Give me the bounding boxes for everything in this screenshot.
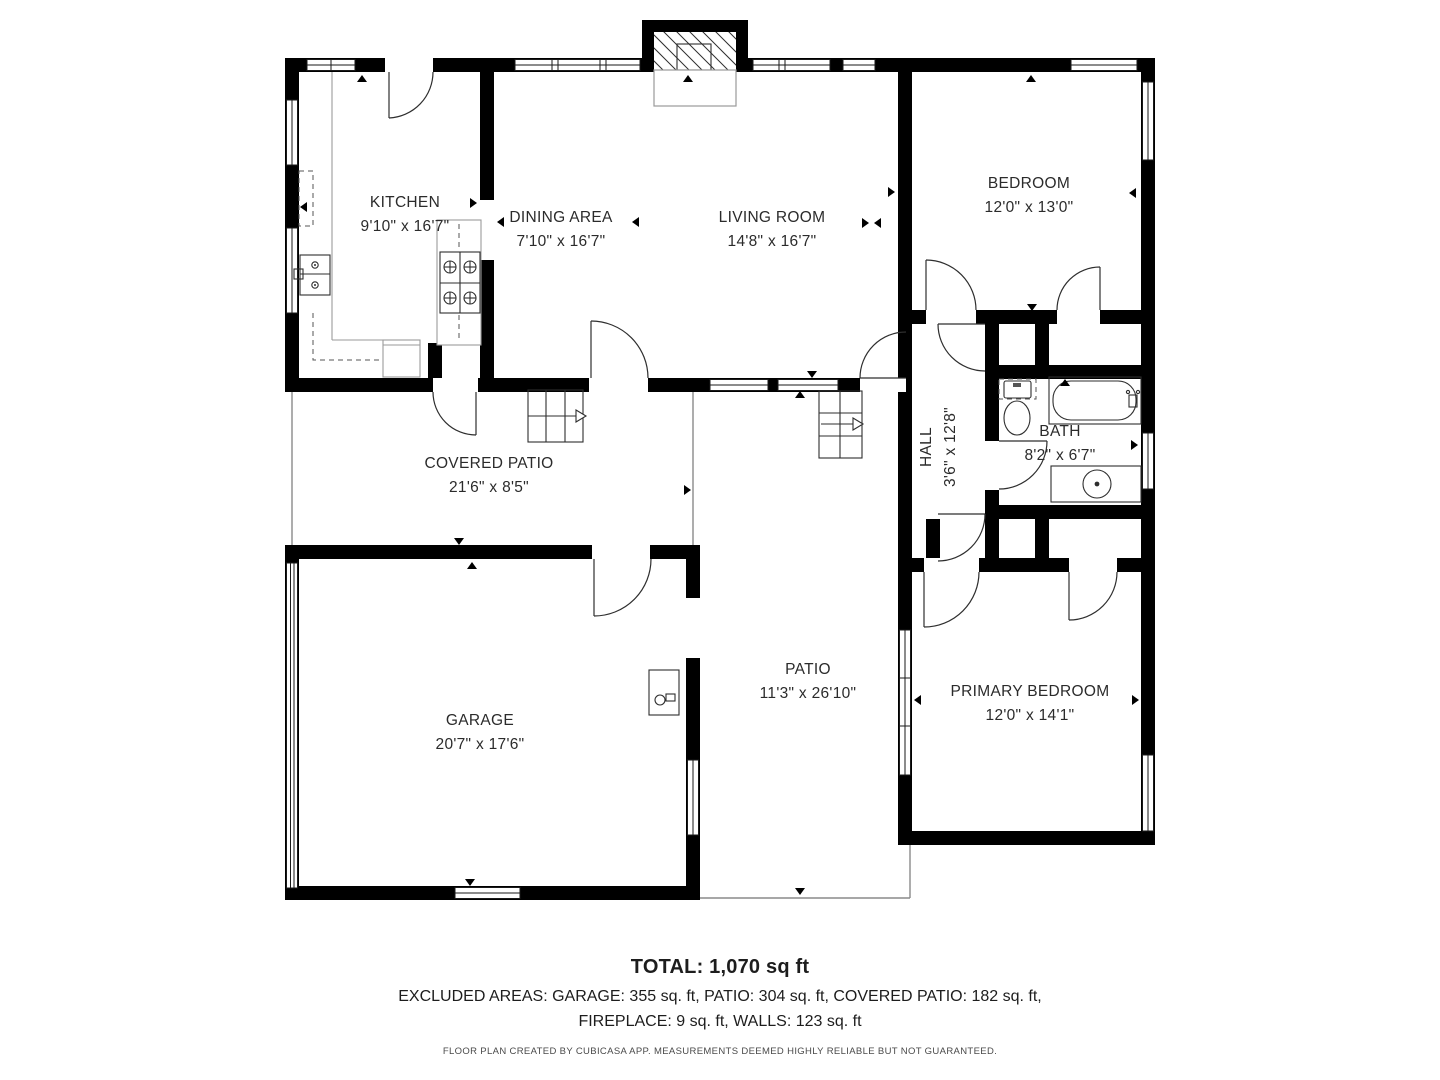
room-name: LIVING ROOM [719, 206, 826, 230]
door-swings [389, 72, 1117, 627]
room-name: PRIMARY BEDROOM [951, 680, 1110, 704]
window [1143, 755, 1154, 831]
room-name: HALL [915, 407, 939, 487]
stairs-covered-patio [528, 390, 586, 442]
window [688, 760, 699, 835]
room-dims: 21'6" x 8'5" [424, 476, 553, 500]
room-dims: 20'7" x 17'6" [436, 733, 525, 757]
excluded-areas-line1: EXCLUDED AREAS: GARAGE: 355 sq. ft, PATI… [0, 988, 1440, 1006]
room-name: COVERED PATIO [424, 452, 553, 476]
room-label-bath: BATH 8'2" x 6'7" [1024, 420, 1095, 468]
total-area-text: TOTAL: 1,070 sq ft [0, 956, 1440, 979]
room-name: BATH [1024, 420, 1095, 444]
room-dims: 8'2" x 6'7" [1024, 444, 1095, 468]
room-label-garage: GARAGE 20'7" x 17'6" [436, 709, 525, 757]
counter-dashed [313, 313, 383, 360]
room-name: GARAGE [436, 709, 525, 733]
disclaimer-text: FLOOR PLAN CREATED BY CUBICASA APP. MEAS… [0, 1046, 1440, 1057]
window [710, 380, 768, 391]
window [307, 60, 355, 71]
room-label-primary-bedroom: PRIMARY BEDROOM 12'0" x 14'1" [951, 680, 1110, 728]
stairs-patio [819, 391, 863, 458]
room-dims: 12'0" x 13'0" [985, 196, 1074, 220]
patio-boundaries [292, 392, 910, 898]
window [287, 228, 298, 313]
window [900, 630, 911, 775]
window [515, 60, 640, 71]
window [778, 380, 838, 391]
window [1143, 433, 1154, 489]
water-heater [649, 670, 679, 715]
room-dims: 3'6" x 12'8" [939, 407, 963, 487]
room-label-bedroom: BEDROOM 12'0" x 13'0" [985, 172, 1074, 220]
window [753, 60, 830, 71]
room-dims: 14'8" x 16'7" [719, 230, 826, 254]
floor-plan-page: KITCHEN 9'10" x 16'7" DINING AREA 7'10" … [0, 0, 1440, 1080]
room-dims: 9'10" x 16'7" [361, 215, 450, 239]
floor-plan-drawing [0, 0, 1440, 1080]
dishwasher [383, 340, 420, 377]
room-name: DINING AREA [509, 206, 612, 230]
room-name: BEDROOM [985, 172, 1074, 196]
room-label-hall: HALL 3'6" x 12'8" [915, 407, 963, 487]
window [287, 100, 298, 165]
fireplace-hearth [654, 70, 736, 106]
room-dims: 12'0" x 14'1" [951, 704, 1110, 728]
kitchen-sink [294, 255, 330, 295]
room-name: KITCHEN [361, 191, 450, 215]
room-label-patio: PATIO 11'3" x 26'10" [760, 658, 857, 706]
garage-door [287, 563, 298, 888]
excluded-areas-line2: FIREPLACE: 9 sq. ft, WALLS: 123 sq. ft [0, 1013, 1440, 1031]
vanity-sink [1051, 466, 1141, 502]
upper-cabinet-dashed [299, 171, 313, 226]
room-name: PATIO [760, 658, 857, 682]
room-dims: 7'10" x 16'7" [509, 230, 612, 254]
window [1071, 60, 1137, 71]
window [1143, 82, 1154, 160]
room-label-dining: DINING AREA 7'10" x 16'7" [509, 206, 612, 254]
room-label-living: LIVING ROOM 14'8" x 16'7" [719, 206, 826, 254]
window [455, 888, 520, 899]
room-dims: 11'3" x 26'10" [760, 682, 857, 706]
window [843, 60, 875, 71]
room-label-kitchen: KITCHEN 9'10" x 16'7" [361, 191, 450, 239]
room-label-covered-patio: COVERED PATIO 21'6" x 8'5" [424, 452, 553, 500]
